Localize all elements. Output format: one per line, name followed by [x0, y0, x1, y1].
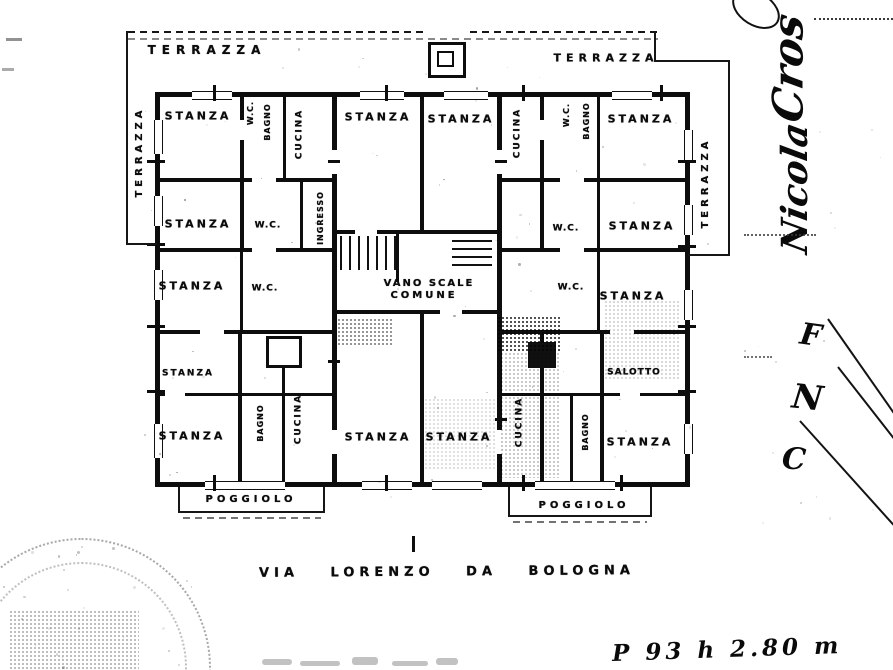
scan-speck: [291, 242, 292, 243]
scan-speck: [495, 240, 497, 242]
page-edge-mark: [6, 38, 22, 41]
stair-tread: [376, 236, 378, 270]
stair-tread: [452, 256, 492, 258]
window-opening: [684, 205, 693, 235]
label-stairwell-label-line2: COMUNE: [390, 291, 457, 301]
scan-speck: [397, 288, 399, 290]
label-wc-top-right-vertical: W.C.: [563, 103, 571, 127]
window-opening: [192, 91, 232, 100]
door-opening: [252, 248, 276, 252]
stair-tread: [367, 236, 369, 270]
scan-speck: [224, 121, 225, 122]
scan-speck: [602, 146, 603, 147]
dotted-mark: [744, 356, 772, 358]
terrace-line: [126, 31, 128, 245]
scan-speck: [476, 87, 478, 89]
scan-speck: [176, 472, 177, 473]
scan-speck: [151, 210, 152, 211]
ripostiglio-box: [266, 336, 302, 368]
scan-speck: [443, 179, 445, 181]
scan-speck: [145, 111, 146, 112]
label-poggiolo-right: POGGIOLO: [539, 501, 630, 511]
scan-speck: [772, 452, 773, 453]
stair-tread: [358, 236, 360, 270]
door-opening: [252, 178, 276, 182]
scan-speck: [575, 348, 577, 350]
wall: [396, 230, 399, 282]
dimension-tick: [678, 390, 696, 393]
scan-speck: [475, 100, 477, 102]
scan-speck: [372, 153, 374, 155]
scanned-floorplan-page: TERRAZZATERRAZZATERRAZZATERRAZZASTANZAW.…: [0, 0, 893, 670]
balcony-line: [650, 487, 652, 516]
scan-speck: [184, 199, 185, 200]
label-stanza-bottom-right: STANZA: [607, 437, 674, 448]
label-stanza-top-right: STANZA: [608, 114, 675, 125]
ink-stamp-noise: [9, 610, 139, 670]
scan-speck: [619, 399, 620, 400]
cut-off-text-fragment: [262, 659, 292, 665]
stair-tread: [349, 236, 351, 270]
scan-speck: [633, 202, 635, 204]
label-stanza-mid-right: STANZA: [609, 221, 676, 232]
wall: [332, 310, 502, 314]
stair-tread: [340, 236, 342, 270]
door-opening: [540, 120, 544, 140]
label-stanza-bottom-center-left: STANZA: [345, 432, 412, 443]
label-bagno-top-right-vertical: BAGNO: [583, 102, 591, 139]
label-ingresso-left-vertical: INGRESSO: [317, 191, 325, 245]
label-wc-mid-right: W.C.: [553, 225, 580, 234]
scan-speck: [465, 306, 466, 307]
wall: [497, 178, 689, 182]
scan-speck: [675, 122, 677, 124]
door-opening: [440, 310, 462, 314]
label-stanza-top-left: STANZA: [165, 111, 232, 122]
dimension-tick: [522, 85, 525, 101]
dotted-mark: [814, 18, 893, 20]
scan-speck: [834, 227, 836, 229]
scan-speck: [311, 330, 313, 332]
label-terrazza-top-left: TERRAZZA: [148, 44, 267, 56]
scan-speck: [689, 426, 691, 428]
label-wc-row3-left: W.C.: [252, 285, 279, 294]
scan-speck: [652, 448, 653, 449]
cut-off-text-fragment: [436, 658, 458, 665]
scan-speck: [298, 48, 300, 50]
terrace-line: [688, 254, 730, 256]
scan-speck: [762, 522, 764, 524]
scan-speck: [518, 263, 520, 265]
scan-speck: [172, 377, 174, 379]
window-opening: [684, 290, 693, 320]
dimension-tick: [678, 160, 696, 163]
balcony-line: [178, 487, 180, 512]
balcony-line: [178, 511, 325, 513]
door-opening: [200, 330, 224, 334]
door-opening: [560, 178, 584, 182]
label-wc-row3-right: W.C.: [558, 284, 585, 293]
label-bagno-bottom-right-vertical: BAGNO: [582, 413, 590, 450]
scan-speck: [880, 157, 881, 158]
label-stanza-top-center-right: STANZA: [428, 114, 495, 125]
scan-speck: [516, 236, 518, 238]
label-stanza-mid-left: STANZA: [165, 219, 232, 230]
wall: [570, 395, 573, 482]
window-opening: [444, 91, 488, 100]
label-cucina-top-right-vertical: CUCINA: [514, 108, 523, 158]
scan-speck: [539, 501, 541, 503]
terrace-dashed-line: [128, 31, 426, 33]
dimension-tick: [495, 160, 507, 163]
dimension-tick: [328, 160, 340, 163]
scan-speck: [483, 338, 485, 340]
scan-speck: [539, 77, 540, 78]
scan-noise-patch: [420, 398, 496, 470]
scan-speck: [819, 131, 821, 133]
label-bagno-top-left-vertical: BAGNO: [264, 103, 272, 140]
label-wc-mid-left: W.C.: [255, 222, 282, 231]
balcony-line: [508, 515, 652, 517]
scan-speck: [206, 124, 208, 126]
wall: [300, 182, 303, 250]
dotted-mark: [744, 234, 816, 236]
scan-speck: [823, 340, 825, 342]
window-opening: [612, 91, 652, 100]
terrace-pillar-inner: [437, 51, 454, 67]
wall: [238, 330, 242, 482]
scan-speck: [169, 474, 171, 476]
scan-speck: [800, 502, 802, 504]
scan-speck: [282, 67, 284, 69]
balcony-line: [508, 487, 510, 516]
terrace-line: [654, 31, 656, 62]
balcony-dashed-line: [513, 521, 647, 523]
wall: [597, 92, 600, 250]
dimension-tick: [213, 85, 216, 101]
street-tick-mark: [412, 536, 415, 552]
label-stanza-row4-left: STANZA: [162, 370, 214, 379]
scan-speck: [576, 170, 578, 172]
scan-speck: [390, 496, 392, 498]
door-opening: [560, 248, 584, 252]
balcony-line: [323, 487, 325, 512]
label-stanza-top-center-left: STANZA: [345, 112, 412, 123]
scan-noise-patch: [337, 318, 393, 346]
terrace-dashed-line: [128, 38, 658, 40]
scan-speck: [235, 257, 236, 258]
stair-tread: [394, 236, 396, 270]
wall: [540, 92, 544, 250]
door-opening: [240, 120, 244, 140]
dimension-tick: [678, 245, 696, 248]
scribble-letter: C: [781, 441, 807, 478]
street-name-label: VIA LORENZO DA BOLOGNA: [259, 563, 635, 581]
scan-speck: [871, 129, 873, 131]
wall: [420, 92, 424, 232]
window-opening: [535, 481, 615, 490]
window-opening: [432, 481, 482, 490]
scan-speck: [744, 350, 746, 352]
scan-noise-patch: [497, 316, 561, 352]
balcony-dashed-line: [183, 517, 321, 519]
scan-speck: [362, 58, 364, 60]
wall: [155, 330, 337, 334]
scan-speck: [202, 376, 204, 378]
dimension-tick: [147, 325, 165, 328]
wall: [497, 248, 689, 252]
window-opening: [154, 120, 163, 154]
label-cucina-bottom-left-vertical: CUCINA: [295, 394, 304, 444]
stair-tread: [452, 264, 492, 266]
scan-speck: [315, 222, 317, 224]
window-opening: [360, 91, 404, 100]
dimension-tick: [213, 475, 216, 491]
scan-speck: [519, 214, 521, 216]
scan-speck: [614, 456, 616, 458]
wall: [240, 92, 244, 250]
wall: [155, 178, 337, 182]
scan-speck: [829, 517, 831, 519]
scan-speck: [192, 351, 194, 353]
dimension-tick: [385, 85, 388, 101]
scan-speck: [453, 315, 455, 317]
stair-tread: [452, 240, 492, 242]
scan-speck: [530, 290, 532, 292]
page-edge-mark: [2, 68, 14, 71]
scan-speck: [707, 243, 709, 245]
door-opening: [355, 230, 377, 234]
scan-speck: [830, 212, 832, 214]
scan-noise-patch: [500, 352, 560, 478]
stamp-speck: [186, 580, 187, 581]
window-opening: [684, 130, 693, 160]
scan-speck: [758, 346, 759, 347]
scribble-letter: N: [790, 376, 825, 419]
label-cucina-top-left-vertical: CUCINA: [296, 109, 305, 159]
cut-off-text-fragment: [392, 661, 428, 666]
dimension-tick: [328, 360, 340, 363]
wall: [240, 250, 243, 330]
door-opening: [620, 393, 640, 396]
door-opening: [165, 393, 185, 396]
scan-speck: [507, 67, 509, 69]
label-bagno-bottom-left-vertical: BAGNO: [257, 404, 265, 441]
stair-tread: [385, 236, 387, 270]
scan-speck: [491, 124, 492, 125]
dimension-tick: [147, 390, 165, 393]
scan-speck: [425, 73, 427, 75]
scan-noise-patch: [604, 300, 680, 380]
terrace-dashed-line: [470, 31, 658, 33]
scan-speck: [872, 509, 874, 511]
scan-speck: [775, 361, 777, 363]
scan-speck: [376, 155, 378, 157]
scan-speck: [625, 430, 627, 432]
dimension-tick: [660, 85, 663, 101]
window-opening: [154, 196, 163, 226]
label-stanza-bottom-left: STANZA: [159, 431, 226, 442]
scan-speck: [293, 444, 295, 446]
label-terrazza-top-right: TERRAZZA: [554, 53, 659, 64]
stamp-speck: [191, 586, 192, 587]
dimension-tick: [385, 475, 388, 491]
scan-speck: [439, 184, 440, 185]
cut-off-text-fragment: [352, 657, 378, 665]
terrace-line: [654, 60, 730, 62]
scan-speck: [563, 371, 564, 372]
scan-speck: [264, 377, 266, 379]
label-terrazza-left-vertical: TERRAZZA: [135, 106, 145, 197]
wall: [282, 366, 285, 482]
label-poggiolo-left: POGGIOLO: [206, 495, 297, 505]
door-opening: [332, 430, 337, 454]
wall: [155, 248, 337, 252]
label-terrazza-right-vertical: TERRAZZA: [701, 137, 711, 228]
scan-speck: [378, 481, 380, 483]
dimension-tick: [147, 160, 165, 163]
cut-off-text-fragment: [300, 661, 340, 666]
label-stanza-row3-left: STANZA: [159, 281, 226, 292]
scan-speck: [643, 163, 645, 165]
wall: [283, 92, 286, 182]
terrace-line: [728, 60, 730, 256]
scan-speck: [816, 496, 817, 497]
stair-tread: [452, 248, 492, 250]
dimension-tick: [620, 475, 623, 491]
label-wc-top-left-vertical: W.C.: [247, 101, 255, 125]
scan-speck: [529, 223, 531, 225]
window-opening: [205, 481, 285, 490]
dimension-tick: [678, 325, 696, 328]
scan-speck: [358, 66, 360, 68]
scan-speck: [144, 434, 146, 436]
scan-speck: [486, 392, 488, 394]
terrace-line: [126, 243, 157, 245]
